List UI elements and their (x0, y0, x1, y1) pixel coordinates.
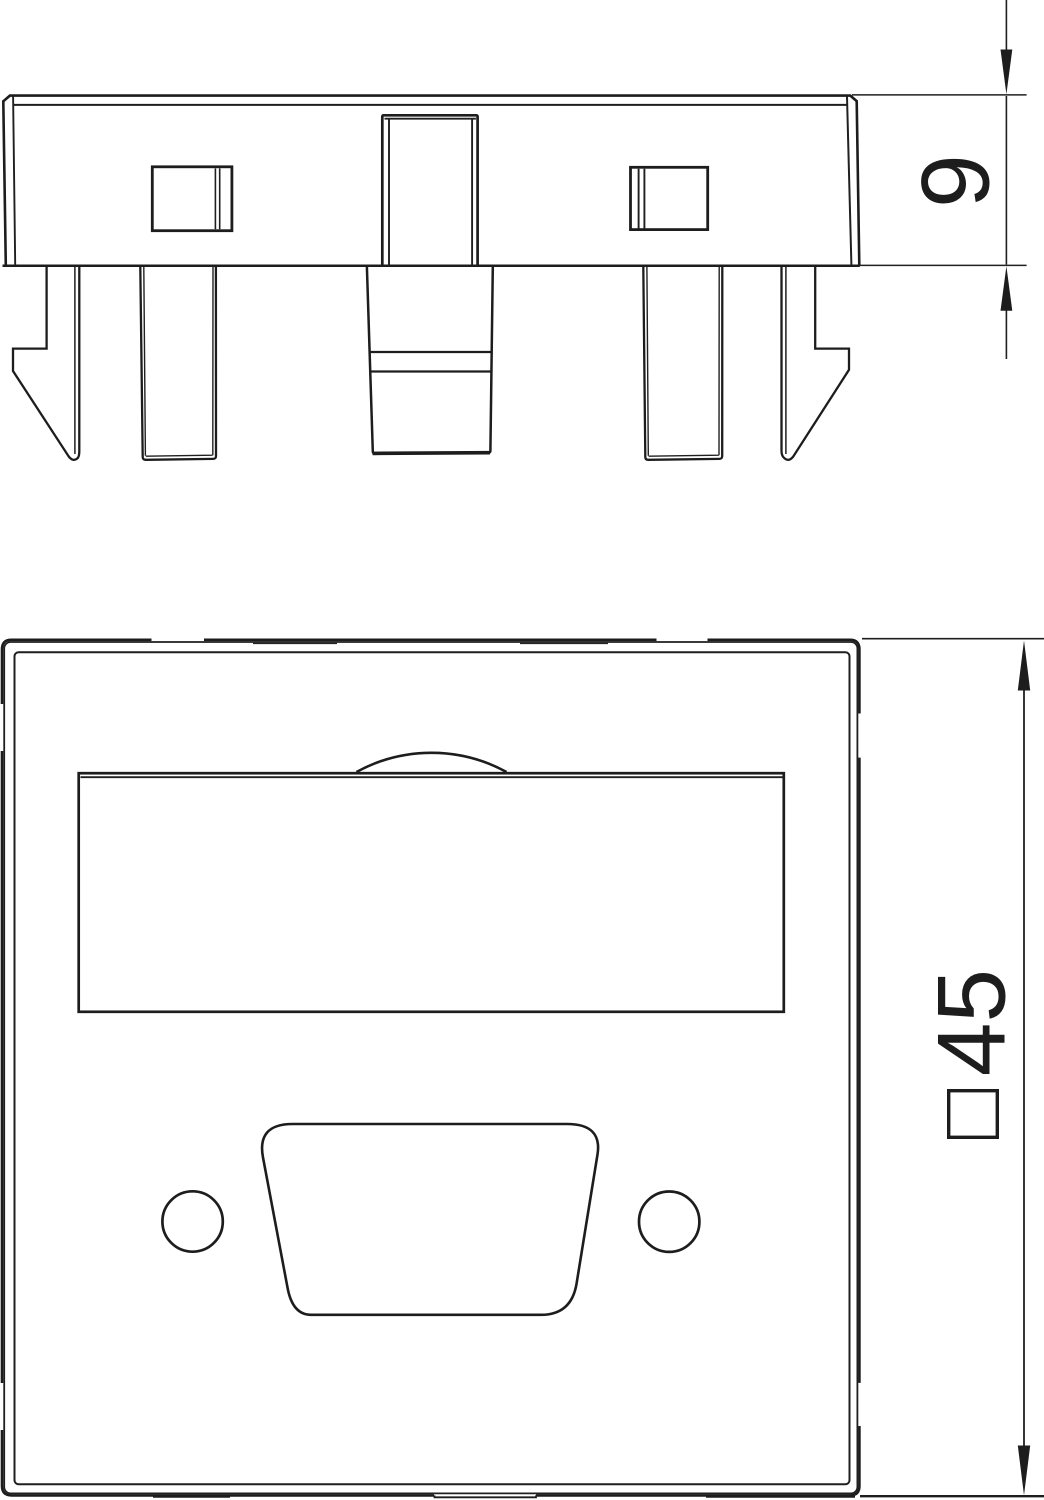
svg-text:9: 9 (902, 154, 1009, 208)
svg-text:45: 45 (918, 969, 1025, 1076)
